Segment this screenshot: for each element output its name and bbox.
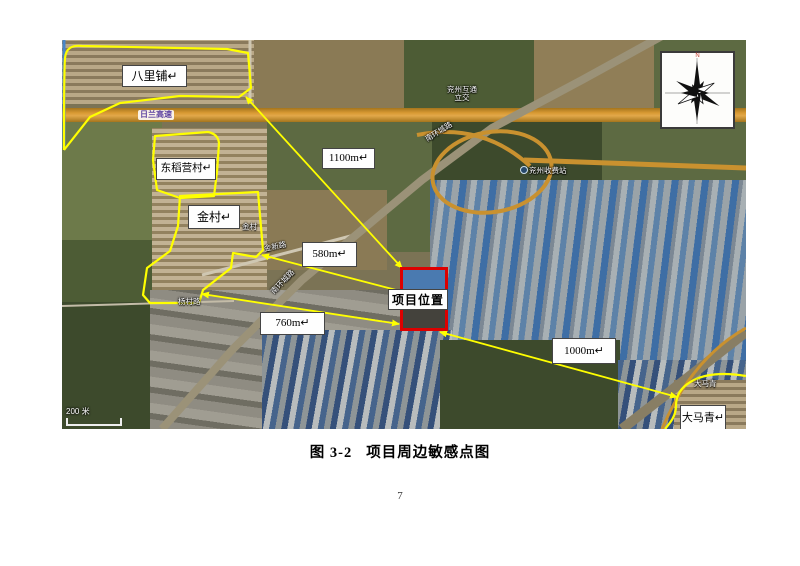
toll-station-icon [520, 166, 528, 174]
yangcun-road-name: 杨村路 [178, 298, 201, 306]
project-location-label: 项目位置 [392, 294, 444, 306]
interchange-name: 兖州互通 立交 [447, 86, 477, 103]
wind-rose-icon [662, 53, 733, 127]
scale-label: 200 米 [66, 407, 90, 416]
label-box-project-location: 项目位置 [388, 289, 448, 310]
label-box-balipu: 八里铺↵ [122, 65, 187, 87]
jincun-small-label: 金村 [242, 223, 257, 231]
damaqing-small-label: 大马青 [694, 380, 717, 388]
compass-box: N [660, 51, 735, 129]
distance-760m: 760m↵ [275, 318, 309, 329]
compass-north-label: N [695, 53, 699, 59]
label-box-damaqing: 大马青↵ [680, 405, 726, 429]
toll-station-name: 兖州收费站 [529, 166, 567, 175]
dongdaoyingcun-label: 东稻营村↵ [161, 164, 212, 175]
highway-name-tag: 日兰高速 [138, 110, 174, 120]
document-page: 八里铺↵ 东稻营村↵ 金村↵ 项目位置 1100m↵ 580m↵ 760m↵ 1… [0, 0, 800, 566]
balipu-outline [64, 46, 251, 150]
label-box-580m: 580m↵ [302, 242, 357, 267]
distance-1000m: 1000m↵ [564, 346, 604, 357]
toll-station-label: 兖州收费站 [520, 166, 567, 175]
label-box-1000m: 1000m↵ [552, 338, 616, 364]
figure-caption-title: 项目周边敏感点图 [366, 445, 490, 461]
label-box-jincun: 金村↵ [188, 205, 240, 229]
distance-580m: 580m↵ [312, 249, 346, 260]
figure-caption-number: 图 3-2 [310, 445, 352, 461]
distance-1100m: 1100m↵ [329, 153, 368, 164]
scale-bracket [66, 418, 122, 426]
label-box-760m: 760m↵ [260, 312, 325, 335]
map-annotation-overlay [62, 40, 746, 429]
balipu-label: 八里铺↵ [131, 70, 177, 82]
figure-caption: 图 3-2项目周边敏感点图 [0, 441, 800, 462]
page-number: 7 [0, 490, 800, 502]
scale-bar: 200 米 [66, 406, 122, 426]
satellite-map-figure: 八里铺↵ 东稻营村↵ 金村↵ 项目位置 1100m↵ 580m↵ 760m↵ 1… [62, 40, 746, 429]
label-box-dongdaoyingcun: 东稻营村↵ [156, 158, 216, 180]
interchange-name-line2: 立交 [455, 93, 470, 102]
ring-road [162, 40, 662, 429]
label-box-1100m: 1100m↵ [322, 148, 375, 169]
damaqing-label: 大马青↵ [682, 413, 724, 424]
jincun-label: 金村↵ [197, 211, 231, 223]
